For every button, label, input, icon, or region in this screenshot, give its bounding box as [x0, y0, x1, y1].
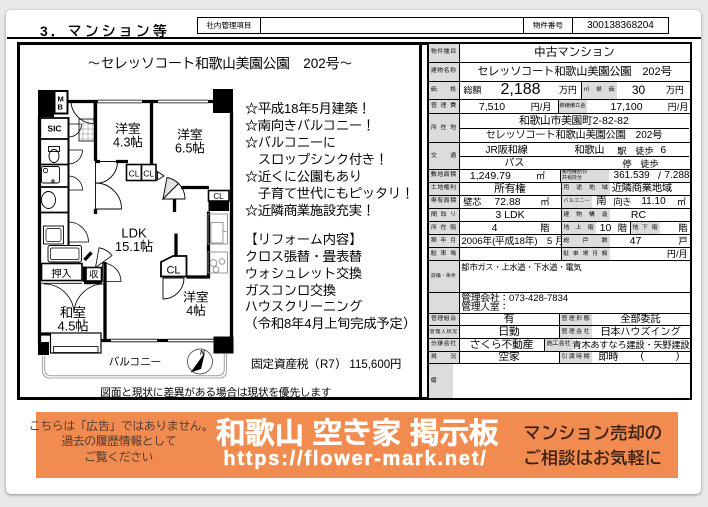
svg-text:SIC: SIC [47, 124, 61, 134]
svg-text:洋室: 洋室 [178, 128, 204, 142]
svg-text:4.5帖: 4.5帖 [57, 319, 88, 334]
svg-text:収: 収 [89, 270, 99, 280]
svg-text:CL: CL [166, 265, 180, 277]
svg-text:CL: CL [213, 192, 224, 201]
svg-text:押入: 押入 [51, 268, 72, 280]
svg-text:バルコニー: バルコニー [109, 356, 162, 369]
svg-text:15.1帖: 15.1帖 [115, 239, 153, 254]
svg-text:CL: CL [143, 169, 154, 179]
svg-text:CL: CL [129, 169, 140, 179]
svg-text:B: B [58, 103, 64, 112]
svg-text:洋室: 洋室 [116, 122, 142, 136]
svg-text:4.3帖: 4.3帖 [113, 136, 143, 150]
svg-text:6.5帖: 6.5帖 [175, 142, 205, 156]
svg-text:洋室: 洋室 [184, 291, 210, 305]
svg-text:4帖: 4帖 [186, 304, 206, 318]
svg-text:N: N [200, 350, 205, 357]
